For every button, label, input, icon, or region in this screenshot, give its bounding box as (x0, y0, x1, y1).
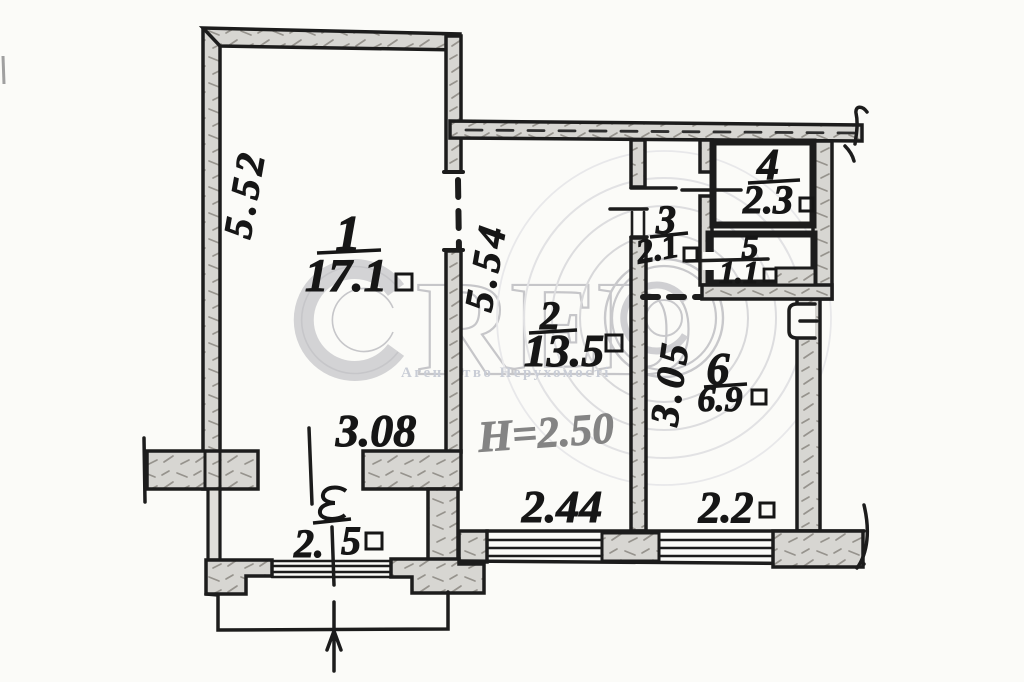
svg-text:2.1: 2.1 (632, 228, 681, 272)
svg-text:2.3: 2.3 (742, 177, 793, 222)
svg-text:6.9: 6.9 (698, 379, 743, 419)
svg-text:2.: 2. (293, 521, 324, 566)
svg-text:2.44: 2.44 (521, 481, 603, 532)
svg-text:H=2.50: H=2.50 (475, 403, 615, 461)
svg-text:1.1: 1.1 (719, 254, 759, 290)
svg-text:3.08: 3.08 (335, 405, 417, 456)
svg-text:2.2: 2.2 (698, 483, 754, 532)
svg-text:17.1: 17.1 (305, 250, 387, 302)
svg-text:5: 5 (341, 518, 361, 563)
svg-text:13.5: 13.5 (524, 325, 605, 376)
